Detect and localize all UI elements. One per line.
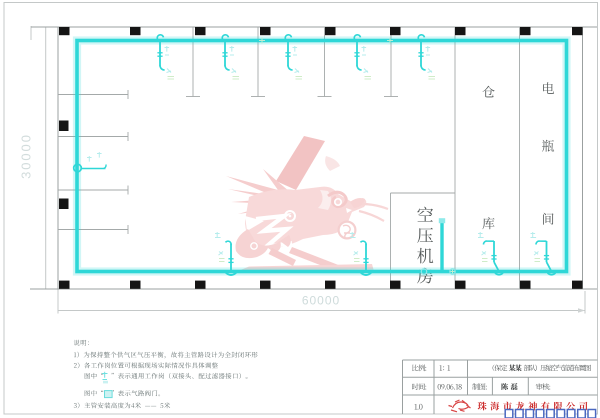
svg-text:30000: 30000 bbox=[19, 133, 34, 179]
svg-text:60000: 60000 bbox=[302, 294, 340, 308]
